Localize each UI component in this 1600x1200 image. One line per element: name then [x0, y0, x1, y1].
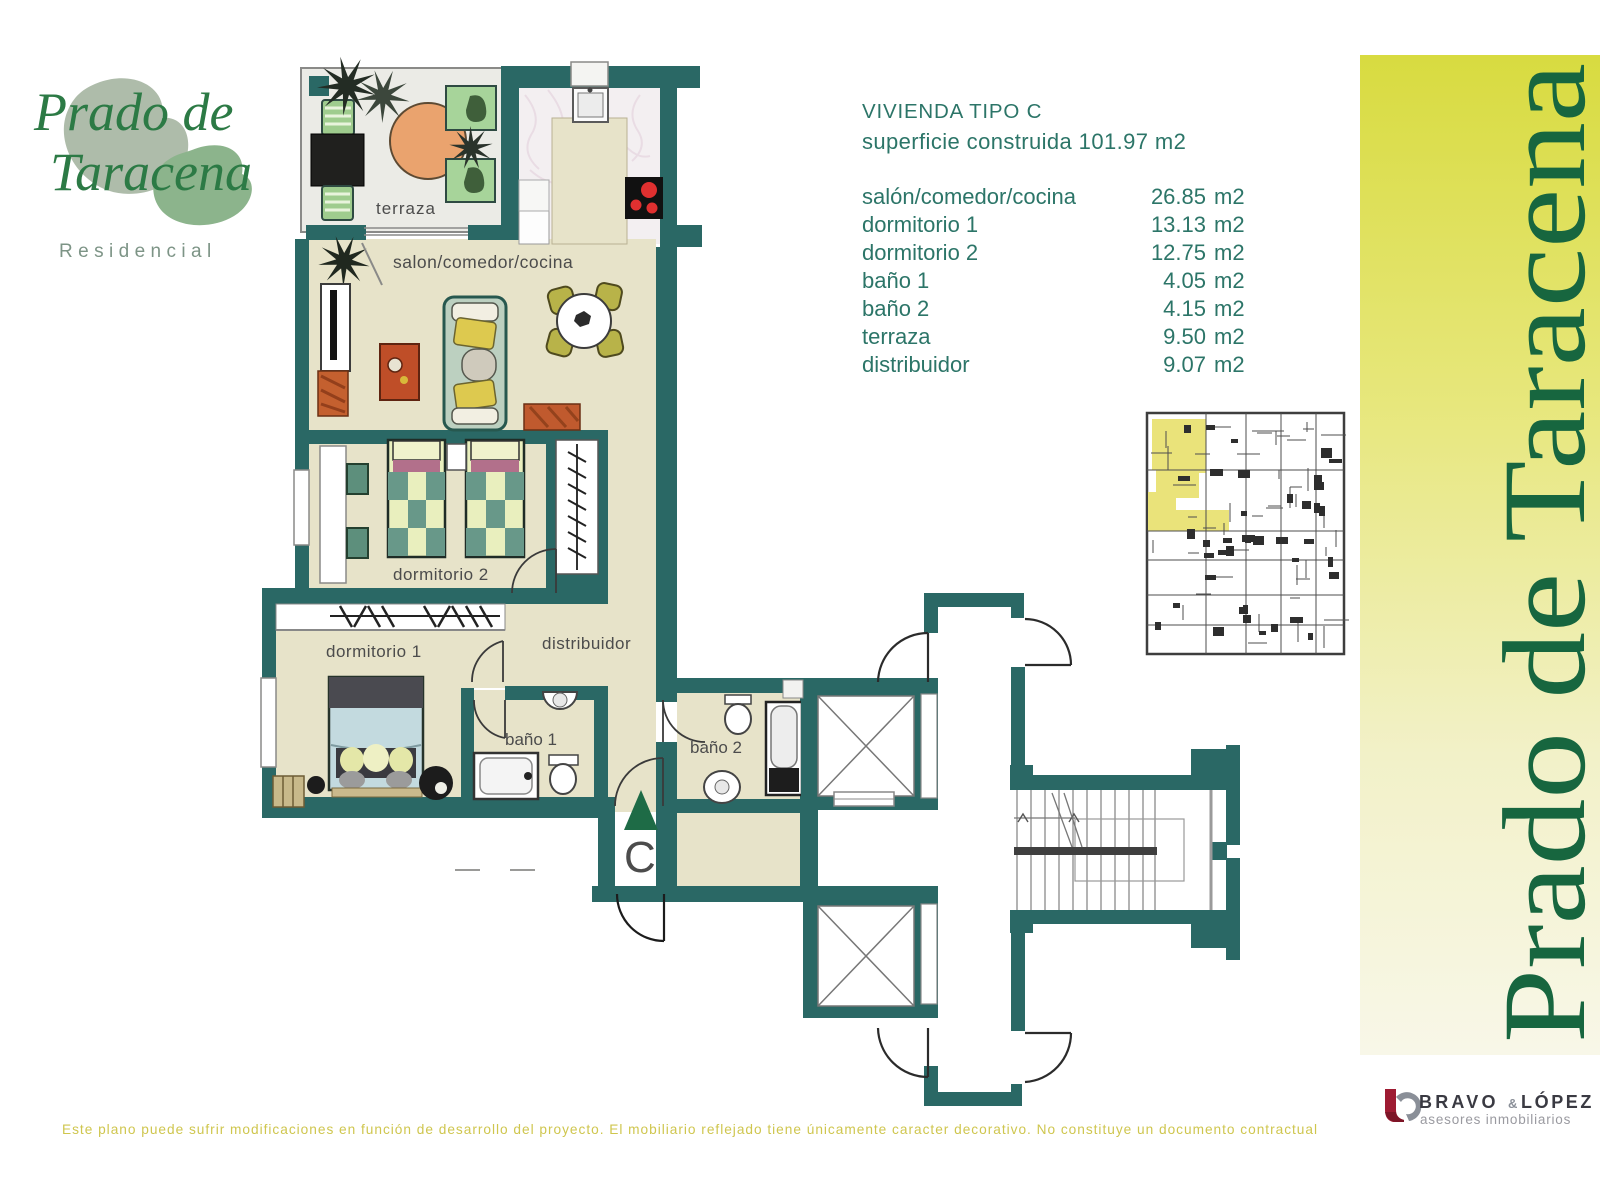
svg-text:Este plano puede sufrir modifi: Este plano puede sufrir modificaciones e… [62, 1121, 1318, 1137]
svg-text:superficie construida 101.97: superficie construida 101.97 m2 [862, 129, 1186, 154]
svg-text:dormitorio 1: dormitorio 1 [862, 212, 978, 237]
svg-text:m2: m2 [1214, 212, 1245, 237]
svg-text:terraza: terraza [376, 199, 436, 218]
svg-text:BRAVO: BRAVO [1419, 1092, 1499, 1112]
svg-text:Taracena: Taracena [50, 142, 252, 202]
svg-text:m2: m2 [1214, 352, 1245, 377]
svg-text:asesores inmobiliarios: asesores inmobiliarios [1420, 1112, 1571, 1127]
svg-text:&: & [1508, 1096, 1517, 1111]
svg-text:dormitorio 1: dormitorio 1 [326, 642, 422, 661]
svg-text:m2: m2 [1214, 184, 1245, 209]
svg-text:Prado de: Prado de [33, 82, 233, 142]
svg-text:m2: m2 [1214, 296, 1245, 321]
svg-text:26.85: 26.85 [1151, 184, 1206, 209]
svg-text:9.07: 9.07 [1163, 352, 1206, 377]
svg-text:distribuidor: distribuidor [542, 634, 631, 653]
svg-text:VIVIENDA TIPO C: VIVIENDA TIPO C [862, 100, 1042, 123]
svg-text:m2: m2 [1214, 268, 1245, 293]
svg-text:dormitorio 2: dormitorio 2 [393, 565, 489, 584]
svg-text:baño 1: baño 1 [862, 268, 929, 293]
svg-text:Residencial: Residencial [59, 241, 217, 262]
svg-text:baño 1: baño 1 [505, 730, 557, 749]
svg-text:13.13: 13.13 [1151, 212, 1206, 237]
svg-text:m2: m2 [1214, 324, 1245, 349]
svg-text:distribuidor: distribuidor [862, 352, 970, 377]
svg-text:9.50: 9.50 [1163, 324, 1206, 349]
svg-text:m2: m2 [1214, 240, 1245, 265]
svg-text:C: C [624, 833, 656, 882]
svg-text:baño 2: baño 2 [862, 296, 929, 321]
svg-text:4.05: 4.05 [1163, 268, 1206, 293]
svg-text:Prado de Taracena: Prado de Taracena [1479, 63, 1600, 1043]
svg-text:salón/comedor/cocina: salón/comedor/cocina [862, 184, 1077, 209]
svg-text:dormitorio 2: dormitorio 2 [862, 240, 978, 265]
svg-text:LÓPEZ: LÓPEZ [1521, 1091, 1594, 1112]
svg-text:12.75: 12.75 [1151, 240, 1206, 265]
svg-text:4.15: 4.15 [1163, 296, 1206, 321]
svg-text:terraza: terraza [862, 324, 931, 349]
svg-text:salon/comedor/cocina: salon/comedor/cocina [393, 252, 573, 272]
